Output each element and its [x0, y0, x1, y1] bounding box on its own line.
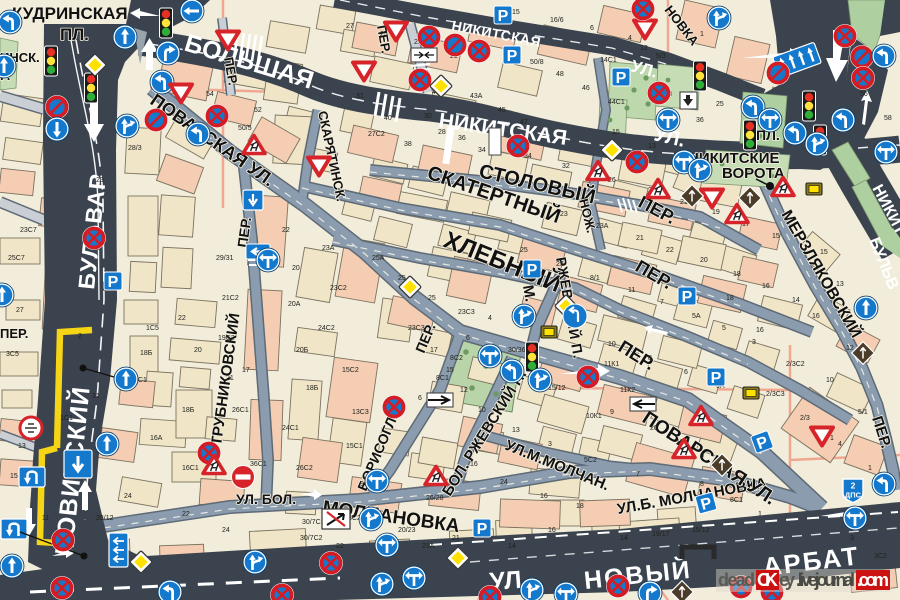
svg-text:30: 30: [424, 113, 432, 120]
svg-text:15С2: 15С2: [342, 367, 359, 374]
svg-text:10: 10: [608, 341, 616, 348]
svg-text:13: 13: [836, 281, 844, 288]
svg-text:5А: 5А: [692, 313, 701, 320]
svg-text:23С2: 23С2: [330, 285, 347, 292]
svg-text:16: 16: [812, 313, 820, 320]
svg-text:52: 52: [254, 107, 262, 114]
svg-text:25: 25: [380, 31, 388, 38]
svg-text:1: 1: [830, 435, 834, 442]
svg-text:25А: 25А: [372, 255, 385, 262]
svg-text:15С1: 15С1: [346, 443, 363, 450]
svg-text:56: 56: [860, 91, 868, 98]
svg-text:24: 24: [222, 527, 230, 534]
svg-text:31: 31: [356, 93, 364, 100]
svg-text:9: 9: [610, 409, 614, 416]
svg-text:15: 15: [512, 9, 520, 16]
svg-text:8С1: 8С1: [730, 497, 743, 504]
svg-text:26С1: 26С1: [232, 407, 249, 414]
svg-text:1С5: 1С5: [146, 325, 159, 332]
svg-text:20/23: 20/23: [398, 527, 416, 534]
svg-text:8С1: 8С1: [436, 375, 449, 382]
svg-text:23: 23: [560, 211, 568, 218]
svg-text:16: 16: [762, 283, 770, 290]
svg-text:20А: 20А: [288, 301, 301, 308]
svg-text:30/7С2: 30/7С2: [300, 535, 323, 542]
svg-text:22: 22: [182, 511, 190, 518]
svg-text:14: 14: [620, 535, 628, 542]
svg-text:15: 15: [820, 249, 828, 256]
svg-text:54: 54: [206, 91, 214, 98]
svg-text:36С1: 36С1: [250, 461, 267, 468]
svg-text:.com: .com: [857, 570, 889, 590]
svg-text:1: 1: [868, 465, 872, 472]
svg-text:6: 6: [590, 25, 594, 32]
svg-text:2/3С2: 2/3С2: [786, 361, 805, 368]
svg-text:11: 11: [628, 287, 635, 294]
svg-text:43А: 43А: [470, 93, 483, 100]
svg-text:dead: dead: [718, 570, 755, 590]
svg-text:18: 18: [576, 503, 584, 510]
svg-text:15/12: 15/12: [692, 527, 710, 534]
svg-text:25: 25: [428, 295, 436, 302]
svg-text:7: 7: [636, 471, 640, 478]
svg-text:ПЕР.: ПЕР.: [0, 326, 28, 341]
svg-text:22: 22: [666, 247, 674, 254]
svg-text:14: 14: [508, 543, 516, 550]
svg-text:31: 31: [92, 393, 100, 400]
svg-text:1: 1: [700, 31, 704, 38]
svg-text:25С7: 25С7: [8, 255, 25, 262]
svg-text:23С7: 23С7: [20, 227, 37, 234]
svg-text:23А: 23А: [596, 223, 609, 230]
svg-text:12: 12: [640, 45, 648, 52]
svg-text:24: 24: [124, 493, 132, 500]
svg-text:24: 24: [500, 479, 508, 486]
svg-text:6: 6: [684, 369, 688, 376]
svg-text:18: 18: [733, 271, 741, 278]
svg-text:4: 4: [838, 441, 842, 448]
svg-text:УЛ. БОЛ.: УЛ. БОЛ.: [236, 491, 296, 507]
svg-text:8: 8: [648, 355, 652, 362]
svg-text:10К1: 10К1: [586, 413, 602, 420]
svg-text:8: 8: [700, 481, 704, 488]
svg-text:20Б: 20Б: [296, 347, 309, 354]
svg-text:15: 15: [772, 233, 780, 240]
svg-text:9: 9: [700, 453, 704, 460]
svg-text:18Б: 18Б: [306, 385, 319, 392]
svg-text:2: 2: [78, 333, 82, 340]
svg-text:5С2: 5С2: [584, 457, 597, 464]
svg-text:30/7С1: 30/7С1: [302, 519, 325, 526]
svg-text:8С2: 8С2: [450, 355, 463, 362]
svg-text:21: 21: [226, 375, 234, 382]
svg-text:22: 22: [178, 315, 186, 322]
svg-text:13С3: 13С3: [352, 409, 369, 416]
svg-text:8/1: 8/1: [590, 275, 600, 282]
svg-text:13: 13: [512, 427, 520, 434]
svg-text:17: 17: [242, 367, 250, 374]
svg-text:47: 47: [520, 119, 528, 126]
svg-text:19С2: 19С2: [218, 335, 235, 342]
svg-text:.livejournal: .livejournal: [796, 570, 855, 590]
svg-text:2/3: 2/3: [800, 415, 810, 422]
svg-text:24С1: 24С1: [282, 425, 299, 432]
svg-text:29/31: 29/31: [216, 255, 234, 262]
svg-text:26/28: 26/28: [426, 495, 444, 502]
svg-text:4: 4: [628, 35, 632, 42]
svg-text:12: 12: [846, 345, 854, 352]
svg-text:50/5: 50/5: [238, 125, 252, 132]
svg-text:ПЛ.: ПЛ.: [60, 25, 89, 44]
svg-text:1: 1: [758, 511, 762, 518]
svg-text:18: 18: [726, 295, 734, 302]
svg-text:21С2: 21С2: [222, 295, 239, 302]
svg-text:ВОРОТА: ВОРОТА: [722, 165, 785, 182]
svg-text:2/3С3: 2/3С3: [766, 391, 785, 398]
svg-text:10: 10: [826, 377, 834, 384]
svg-text:16А: 16А: [150, 435, 163, 442]
svg-text:19/17: 19/17: [652, 531, 670, 538]
svg-text:16: 16: [540, 493, 548, 500]
svg-text:4: 4: [488, 315, 492, 322]
svg-text:19: 19: [712, 209, 720, 216]
svg-text:28/12: 28/12: [96, 515, 114, 522]
svg-text:16: 16: [756, 327, 764, 334]
svg-text:3С5: 3С5: [6, 351, 19, 358]
svg-text:32: 32: [562, 163, 570, 170]
svg-text:7: 7: [660, 299, 664, 306]
svg-text:15: 15: [446, 367, 454, 374]
svg-text:11К2: 11К2: [620, 387, 635, 394]
svg-text:15: 15: [612, 129, 620, 136]
svg-text:11: 11: [42, 515, 49, 522]
svg-text:20: 20: [700, 257, 708, 264]
svg-text:36: 36: [458, 135, 466, 142]
svg-text:26С2: 26С2: [296, 465, 313, 472]
svg-text:16: 16: [470, 461, 478, 468]
svg-text:38: 38: [404, 141, 412, 148]
svg-text:21А: 21А: [422, 543, 435, 550]
svg-text:5/1: 5/1: [858, 409, 868, 416]
svg-text:25: 25: [520, 247, 528, 254]
svg-text:50/8: 50/8: [530, 59, 544, 66]
svg-text:20: 20: [292, 265, 300, 272]
svg-text:13: 13: [18, 443, 26, 450]
svg-text:34: 34: [478, 147, 486, 154]
svg-text:21: 21: [452, 535, 460, 542]
svg-text:27С2: 27С2: [368, 131, 385, 138]
svg-text:27: 27: [16, 307, 24, 314]
svg-text:13: 13: [648, 143, 656, 150]
svg-text:27: 27: [346, 23, 354, 30]
svg-text:23А: 23А: [322, 245, 335, 252]
svg-text:23: 23: [556, 261, 564, 268]
svg-text:5: 5: [722, 325, 726, 332]
svg-text:16С1: 16С1: [182, 465, 199, 472]
svg-text:40: 40: [384, 115, 392, 122]
svg-text:КУДРИНСКАЯ: КУДРИНСКАЯ: [12, 4, 128, 23]
svg-text:3С2: 3С2: [874, 553, 887, 560]
svg-text:3: 3: [548, 441, 552, 448]
svg-text:15: 15: [10, 473, 18, 480]
svg-text:58: 58: [884, 115, 892, 122]
svg-text:30/36: 30/36: [508, 347, 526, 354]
svg-text:12: 12: [460, 387, 468, 394]
svg-text:20: 20: [650, 425, 658, 432]
svg-text:21: 21: [636, 235, 644, 242]
svg-text:20: 20: [194, 347, 202, 354]
svg-text:ey: ey: [779, 570, 795, 590]
svg-text:14С1: 14С1: [600, 57, 617, 64]
svg-text:22: 22: [336, 543, 344, 550]
svg-text:5/3: 5/3: [656, 53, 666, 60]
svg-text:10: 10: [478, 407, 486, 414]
svg-text:6: 6: [466, 335, 470, 342]
svg-text:23С3: 23С3: [408, 325, 425, 332]
svg-text:1С1: 1С1: [60, 415, 73, 422]
svg-text:45: 45: [498, 107, 506, 114]
svg-text:23С3: 23С3: [458, 309, 475, 316]
svg-text:23: 23: [96, 177, 104, 184]
svg-text:М.: М.: [519, 284, 539, 303]
svg-text:25: 25: [716, 101, 724, 108]
svg-text:24С2: 24С2: [318, 325, 335, 332]
svg-text:18Б: 18Б: [140, 350, 153, 357]
svg-text:11К1: 11К1: [604, 361, 619, 368]
svg-text:17: 17: [430, 347, 438, 354]
svg-text:28: 28: [438, 129, 446, 136]
svg-text:46: 46: [582, 85, 590, 92]
svg-text:6: 6: [418, 395, 422, 402]
svg-text:14: 14: [792, 297, 800, 304]
svg-text:28/3: 28/3: [128, 145, 142, 152]
svg-text:18Б: 18Б: [182, 407, 195, 414]
svg-text:OK: OK: [757, 570, 778, 590]
svg-text:16: 16: [548, 527, 556, 534]
svg-text:36: 36: [696, 117, 704, 124]
svg-text:3: 3: [850, 535, 854, 542]
svg-text:22: 22: [282, 227, 290, 234]
svg-text:48: 48: [556, 71, 564, 78]
svg-text:3: 3: [752, 339, 756, 346]
svg-text:16/6: 16/6: [550, 17, 564, 24]
svg-text:44С1: 44С1: [608, 99, 625, 106]
